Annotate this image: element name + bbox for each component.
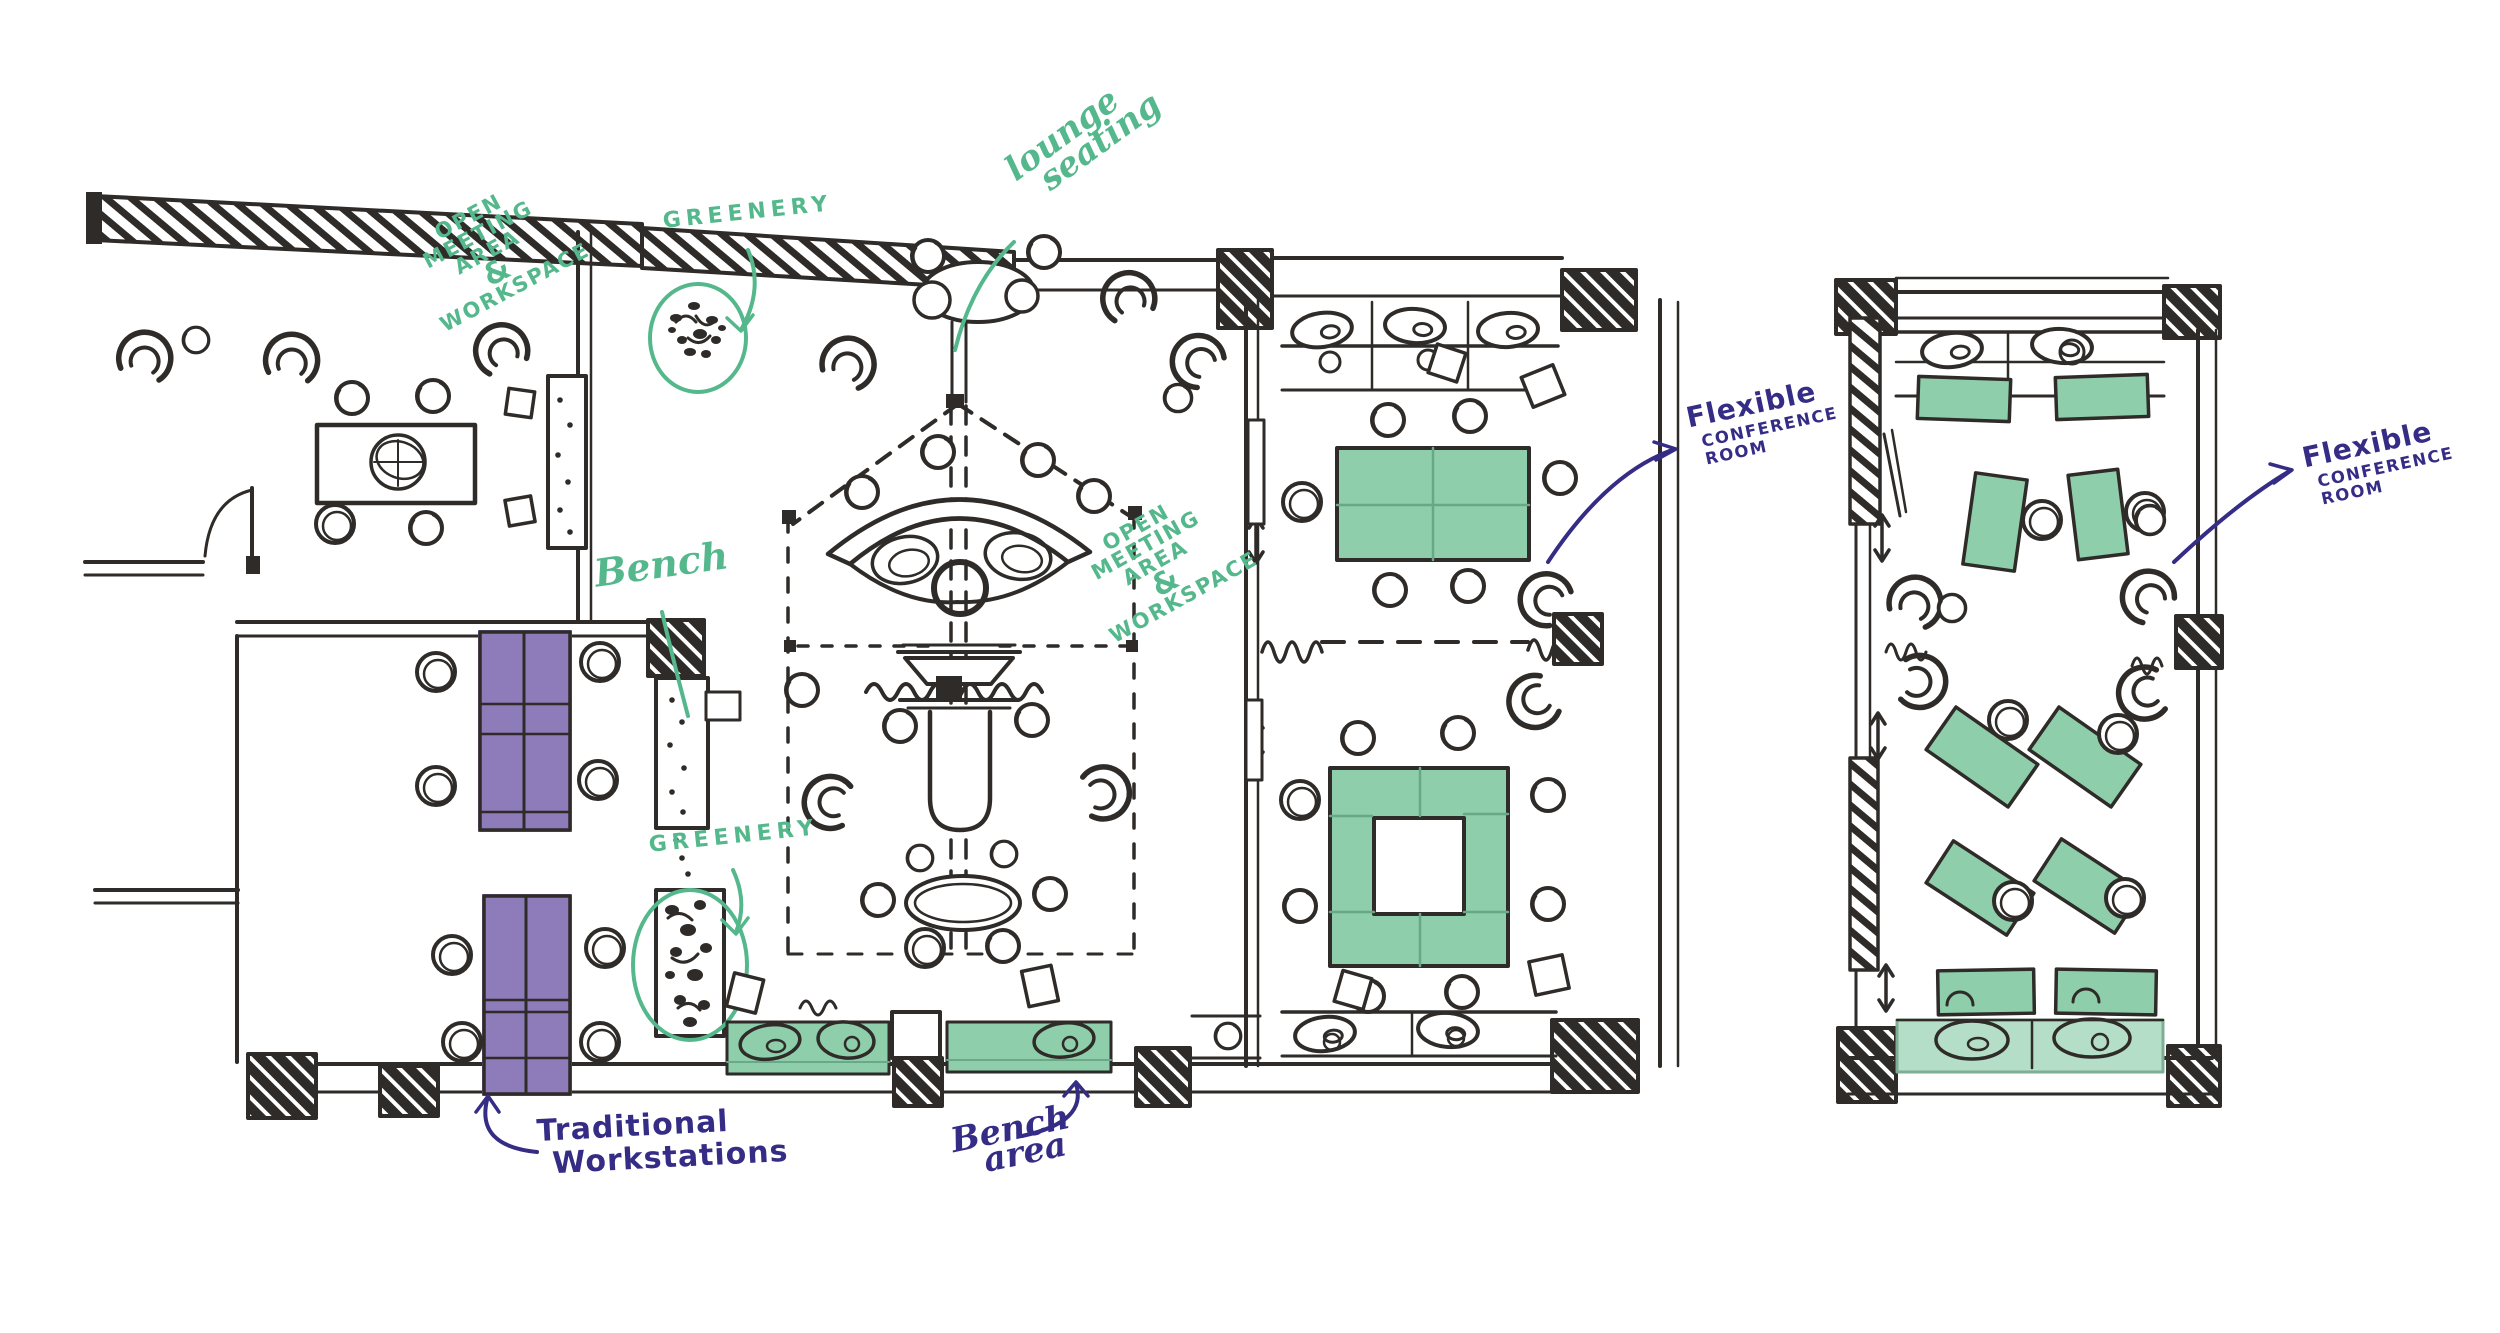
flexible-conference-arrow-secondary — [2174, 464, 2292, 562]
central-open-meeting-area — [782, 394, 1142, 967]
label-traditional-workstations: Traditional Workstations — [536, 1105, 789, 1179]
secondary-desks — [1884, 326, 2180, 1014]
traditional-workstations-arrow — [476, 1096, 537, 1152]
flexible-conference-room — [1246, 302, 1602, 1056]
traditional-workstations — [417, 630, 624, 1096]
main-plan — [85, 192, 1678, 1152]
floor-plan-sketch — [0, 0, 2500, 1333]
secondary-plan — [1836, 278, 2292, 1106]
open-meeting-workspace-zone — [114, 317, 586, 548]
floor-plan-page: OPEN MEETING AREA & WORKSPACE GREENERY l… — [0, 0, 2500, 1333]
greenery-planter-mid — [633, 890, 747, 1040]
bench-1 — [505, 376, 586, 548]
flexible-conference-arrow-main — [1548, 442, 1676, 562]
secondary-bench — [1897, 1019, 2163, 1072]
greenery-planter-top — [650, 284, 746, 392]
